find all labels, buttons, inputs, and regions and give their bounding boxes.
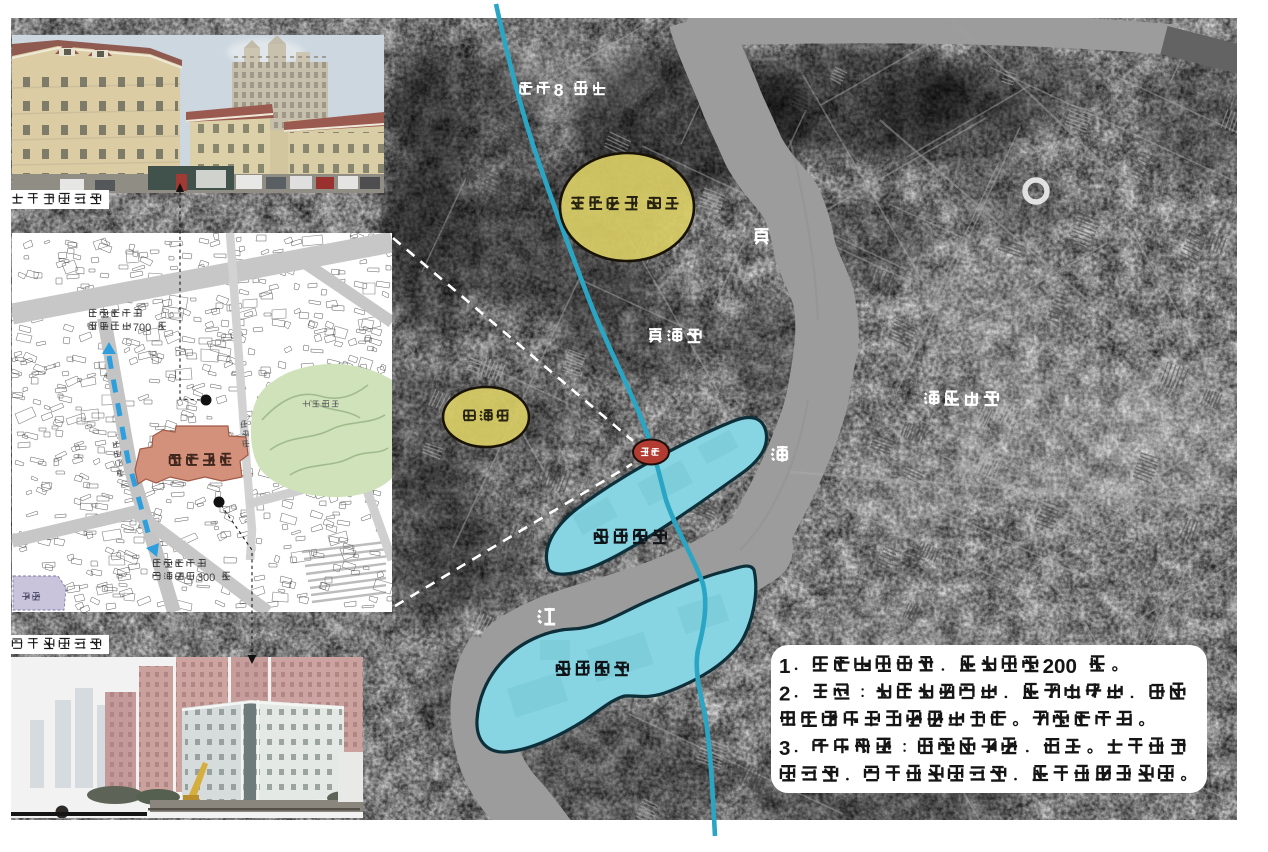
svg-text:3: 3 xyxy=(779,737,790,760)
svg-text:1: 1 xyxy=(779,655,790,678)
svg-text:700: 700 xyxy=(133,322,151,334)
svg-text:200: 200 xyxy=(1043,655,1077,678)
svg-text:8: 8 xyxy=(554,80,564,100)
svg-text:300: 300 xyxy=(197,572,215,584)
svg-text:2: 2 xyxy=(779,682,790,705)
